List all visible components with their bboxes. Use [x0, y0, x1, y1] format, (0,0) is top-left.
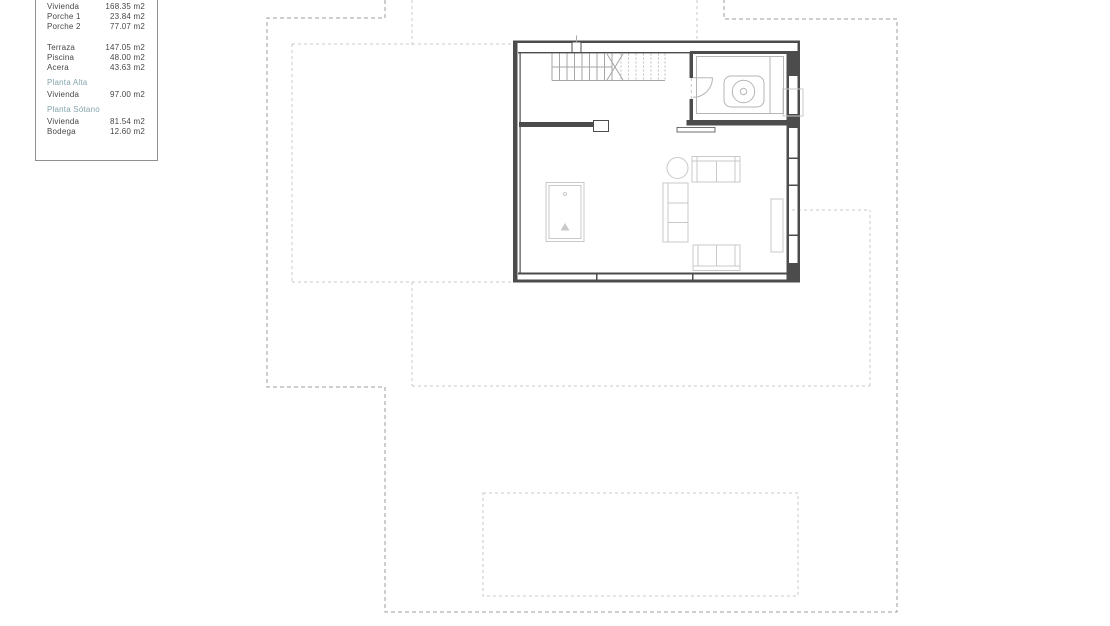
door-jamb [596, 273, 598, 283]
billiard-rack-triangle [561, 223, 570, 231]
sofa-bottom [693, 245, 740, 271]
sink [732, 80, 754, 102]
legend-section-header: Planta Sótano [47, 105, 145, 115]
interior-wall [519, 122, 594, 127]
legend-label: Porche 2 [47, 22, 81, 32]
floorplan-canvas: Vivienda168.35 m2Porche 123.84 m2Porche … [0, 0, 1110, 626]
sideboard [771, 199, 783, 252]
pool-outline [483, 493, 798, 596]
legend-label: Piscina [47, 53, 74, 63]
legend-label: Terraza [47, 43, 75, 53]
window-mullion [787, 235, 801, 237]
pool-table [546, 183, 584, 242]
legend-row: Porche 123.84 m2 [47, 12, 145, 22]
legend-row: Porche 277.07 m2 [47, 22, 145, 32]
legend-label: Porche 1 [47, 12, 81, 22]
legend-spacer [47, 32, 145, 43]
legend-row: Vivienda168.35 m2 [47, 2, 145, 12]
legend-row: Vivienda97.00 m2 [47, 90, 145, 100]
legend-row: Vivienda81.54 m2 [47, 117, 145, 127]
door-jamb [692, 273, 694, 283]
legend-label: Bodega [47, 127, 76, 137]
legend-value: 23.84 m2 [110, 12, 145, 22]
sofa-left [663, 183, 688, 242]
pillar [572, 42, 581, 53]
legend-row: Terraza147.05 m2 [47, 43, 145, 53]
door-arc [693, 78, 713, 98]
legend-value: 77.07 m2 [110, 22, 145, 32]
furniture [546, 157, 783, 271]
legend-value: 48.00 m2 [110, 53, 145, 63]
legend-label: Vivienda [47, 117, 79, 127]
legend-row: Piscina48.00 m2 [47, 53, 145, 63]
legend-row: Bodega12.60 m2 [47, 127, 145, 137]
bathroom [693, 57, 784, 114]
legend-value: 168.35 m2 [105, 2, 145, 12]
legend-value: 12.60 m2 [110, 127, 145, 137]
interior-wall-cap [594, 121, 609, 132]
floorplan-drawing [0, 0, 1110, 626]
legend-label: Acera [47, 63, 69, 73]
sink-drain [740, 88, 746, 94]
legend-value: 97.00 m2 [110, 90, 145, 100]
legend-label: Vivienda [47, 90, 79, 100]
round-table [667, 158, 688, 179]
legend-value: 147.05 m2 [105, 43, 145, 53]
window-mullion [787, 185, 801, 187]
legend-label: Vivienda [47, 2, 79, 12]
low-wall-stub [677, 128, 715, 133]
legend-row: Acera43.63 m2 [47, 63, 145, 73]
window-mullion [787, 158, 801, 160]
legend-value: 43.63 m2 [110, 63, 145, 73]
sofa-top [692, 157, 740, 183]
staircase [552, 54, 665, 81]
legend-section-header: Planta Alta [47, 78, 145, 88]
building-walls [513, 36, 803, 283]
area-legend-table: Vivienda168.35 m2Porche 123.84 m2Porche … [35, 0, 158, 161]
legend-value: 81.54 m2 [110, 117, 145, 127]
